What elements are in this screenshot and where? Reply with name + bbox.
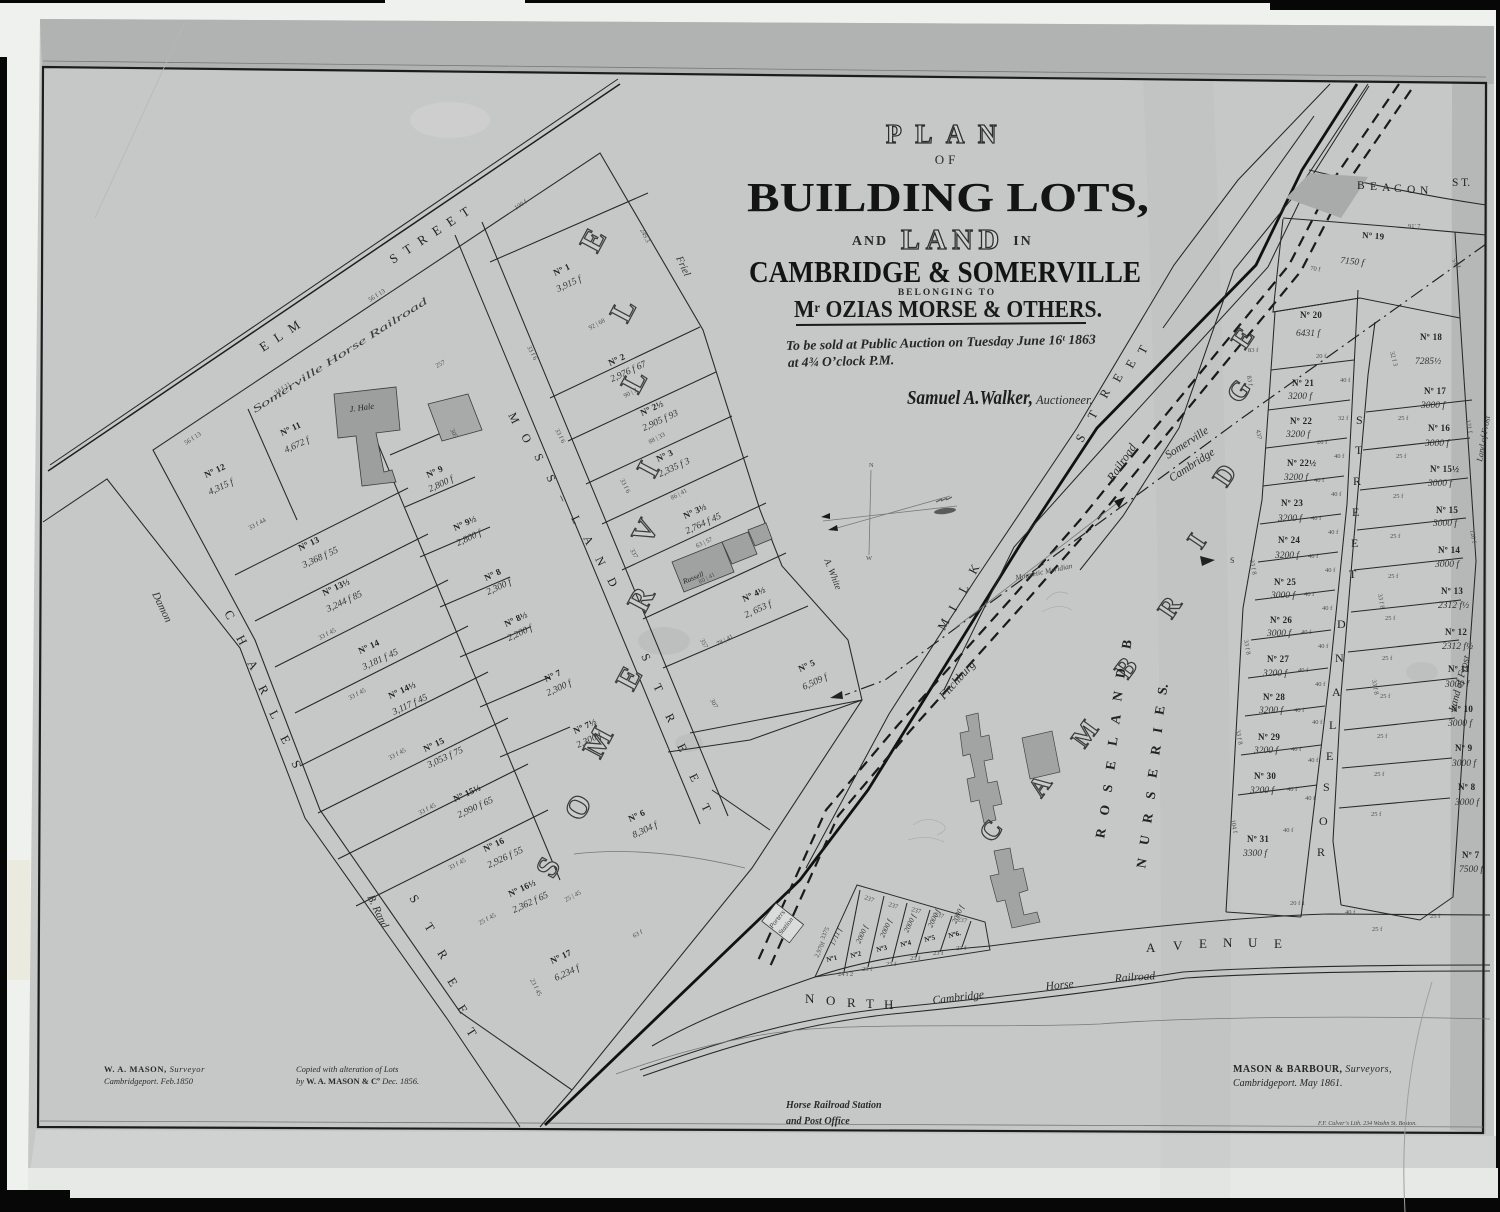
svg-text:Samuel A.Walker,: Samuel A.Walker, [907,387,1033,409]
svg-text:Nº 24: Nº 24 [1278,535,1300,545]
svg-text:25 f: 25 f [1374,771,1385,778]
svg-text:IN: IN [1013,234,1033,249]
svg-text:Mr OZIAS MORSE & OTHERS.: Mr OZIAS MORSE & OTHERS. [794,297,1102,323]
svg-text:3000 f: 3000 f [1420,400,1446,411]
svg-text:20 f: 20 f [1316,353,1327,360]
svg-text:Nº 13: Nº 13 [1441,586,1463,596]
svg-text:Nº 15½: Nº 15½ [1430,464,1459,474]
svg-text:CAMBRIDGE & SOMERVILLE: CAMBRIDGE & SOMERVILLE [749,254,1141,289]
svg-text:S: S [1230,556,1234,565]
svg-text:20 f: 20 f [1317,439,1328,446]
svg-text:7285½: 7285½ [1415,356,1441,367]
svg-text:Cambridgeport. Feb.1850: Cambridgeport. Feb.1850 [104,1076,194,1086]
svg-text:3000 f: 3000 f [1424,438,1450,449]
svg-text:A: A [1332,685,1341,699]
svg-text:Nº 23: Nº 23 [1281,498,1303,508]
svg-text:S: S [1323,780,1330,794]
svg-text:3200 f: 3200 f [1262,668,1288,679]
svg-text:O: O [1407,184,1415,196]
svg-text:Auctioneer.: Auctioneer. [1035,393,1093,407]
svg-text:BUILDING LOTS,: BUILDING LOTS, [747,174,1149,220]
svg-text:40 f: 40 f [1315,681,1326,688]
svg-text:25 f: 25 f [1377,733,1388,740]
svg-text:Nº 31: Nº 31 [1247,834,1269,844]
svg-text:Nº 22½: Nº 22½ [1287,458,1316,468]
svg-text:at 4¾ Oʼclock P.M.: at 4¾ Oʼclock P.M. [788,352,895,370]
svg-text:Horse Railroad Station: Horse Railroad Station [785,1100,882,1111]
svg-text:Nº 8: Nº 8 [1458,782,1476,792]
svg-text:Nº 9: Nº 9 [1455,743,1473,753]
svg-text:Cambridgeport. May 1861.: Cambridgeport. May 1861. [1233,1078,1342,1089]
svg-text:N: N [1335,651,1344,665]
svg-text:25 f: 25 f [1382,655,1393,662]
svg-text:Nº 20: Nº 20 [1300,310,1322,320]
svg-text:40 f: 40 f [1334,453,1345,460]
svg-text:E: E [1274,936,1282,951]
svg-text:3300 f: 3300 f [1242,848,1268,859]
svg-text:Nº 18: Nº 18 [1420,332,1442,342]
svg-text:40 f: 40 f [1311,515,1322,522]
svg-text:Nº 12: Nº 12 [1445,627,1467,637]
svg-text:Nº 14: Nº 14 [1438,545,1460,555]
svg-text:25 f: 25 f [1385,615,1396,622]
svg-text:C: C [1394,183,1402,195]
svg-text:40 f: 40 f [1304,591,1315,598]
svg-text:Nº 21: Nº 21 [1292,378,1314,388]
svg-text:20 f 1: 20 f 1 [1290,900,1305,907]
svg-text:40 f: 40 f [1331,491,1342,498]
svg-text:23 f: 23 f [910,955,921,962]
svg-text:O: O [1319,814,1328,828]
svg-text:MASON & BARBOUR, Surveyors,: MASON & BARBOUR, Surveyors, [1233,1064,1392,1075]
svg-text:D: D [1337,617,1346,631]
svg-text:25 f: 25 f [1430,913,1441,920]
svg-text:3200 f: 3200 f [1277,513,1303,524]
svg-text:Nº 26: Nº 26 [1270,615,1292,625]
svg-text:3200 f: 3200 f [1283,472,1309,483]
svg-text:H: H [884,997,893,1012]
svg-text:A: A [1146,940,1156,955]
svg-text:40 f: 40 f [1283,827,1294,834]
svg-text:3000 f: 3000 f [1451,758,1477,769]
svg-text:23 f: 23 f [886,961,897,968]
svg-text:Nº 29: Nº 29 [1258,732,1280,742]
svg-text:40 f: 40 f [1340,377,1351,384]
svg-text:40 f: 40 f [1305,795,1316,802]
svg-text:Nº 19: Nº 19 [1362,230,1385,242]
svg-text:3200 f: 3200 f [1274,550,1300,561]
svg-text:25 f: 25 f [1372,926,1383,933]
svg-text:PLAN: PLAN [886,119,1010,149]
svg-text:24 f 2: 24 f 2 [838,971,853,978]
svg-text:25 f: 25 f [1398,415,1409,422]
svg-text:Nº 25: Nº 25 [1274,577,1296,587]
svg-text:E: E [1370,181,1377,193]
svg-text:40 f: 40 f [1308,757,1319,764]
svg-text:25 f: 25 f [1396,453,1407,460]
svg-text:3000 f: 3000 f [1432,518,1458,529]
svg-text:3000 f: 3000 f [1270,590,1296,601]
svg-text:B: B [1357,180,1365,192]
svg-text:3000 f: 3000 f [1454,797,1480,808]
svg-text:E: E [1326,749,1333,763]
svg-text:Copied with alteration of Lots: Copied with alteration of Lots [296,1064,399,1074]
svg-text:Nº 16: Nº 16 [1428,423,1450,433]
svg-text:N: N [869,462,874,469]
svg-text:40 f: 40 f [1322,605,1333,612]
svg-text:A: A [1382,182,1391,194]
svg-text:F.F. Culverʼs Lith. 234 Washn: F.F. Culverʼs Lith. 234 Washn St. Boston… [1317,1120,1417,1127]
svg-text:Nº 22: Nº 22 [1290,416,1312,426]
svg-text:and Post Office: and Post Office [786,1116,850,1127]
svg-text:40 f: 40 f [1298,667,1309,674]
svg-text:W: W [866,555,873,562]
svg-text:3200 f: 3200 f [1285,429,1311,440]
svg-text:OF: OF [935,152,960,167]
svg-text:25 f: 25 f [1371,811,1382,818]
svg-text:40 f: 40 f [1308,553,1319,560]
svg-text:7500 f: 7500 f [1459,864,1484,875]
svg-text:25 f: 25 f [1388,573,1399,580]
svg-text:Nº 17: Nº 17 [1424,386,1446,396]
svg-text:3200 f: 3200 f [1249,785,1275,796]
svg-text:3000 f: 3000 f [1266,628,1292,639]
svg-text:23 f: 23 f [862,966,873,973]
svg-text:U: U [1248,935,1258,950]
svg-text:Nº 15: Nº 15 [1436,505,1458,515]
svg-text:R: R [1317,845,1325,859]
svg-text:6431 f: 6431 f [1296,328,1321,339]
svg-text:L: L [1329,718,1336,732]
svg-text:91' 7: 91' 7 [1408,223,1421,230]
svg-text:S T.: S T. [1452,177,1470,189]
svg-text:40 f: 40 f [1312,719,1323,726]
svg-text:AND: AND [852,234,888,249]
svg-text:3200 f: 3200 f [1253,745,1279,756]
svg-text:Nº 28: Nº 28 [1263,692,1285,702]
svg-text:40 f: 40 f [1325,567,1336,574]
svg-text:3000 f: 3000 f [1447,718,1473,729]
svg-text:83 f: 83 f [1248,347,1259,354]
svg-text:40 f: 40 f [1294,707,1305,714]
svg-text:Nº 7: Nº 7 [1462,850,1480,860]
svg-text:25 f: 25 f [1390,533,1401,540]
svg-text:40 f: 40 f [1318,643,1329,650]
svg-text:40 f: 40 f [1301,629,1312,636]
svg-text:40 f: 40 f [1291,746,1302,753]
svg-text:S: S [1356,413,1363,427]
svg-text:O: O [826,993,835,1008]
svg-text:3000 f: 3000 f [1434,559,1460,570]
svg-text:T: T [866,996,874,1011]
svg-text:by W. A. MASON & Cº Dec. 1856.: by W. A. MASON & Cº Dec. 1856. [296,1076,419,1086]
svg-text:W. A. MASON, Surveyor: W. A. MASON, Surveyor [104,1064,205,1074]
svg-text:N: N [805,991,815,1006]
svg-text:2312 f½: 2312 f½ [1438,600,1469,611]
svg-text:40 f: 40 f [1328,529,1339,536]
svg-text:E: E [1351,536,1358,550]
svg-text:R: R [847,995,856,1010]
svg-text:Nº 30: Nº 30 [1254,771,1276,781]
svg-text:2312 f½: 2312 f½ [1442,641,1473,652]
svg-text:Nº 27: Nº 27 [1267,654,1289,664]
svg-text:32 f: 32 f [1338,415,1349,422]
svg-text:25 f: 25 f [1393,493,1404,500]
svg-text:40 f: 40 f [1287,786,1298,793]
svg-text:25 f: 25 f [1380,693,1391,700]
svg-text:3200 f: 3200 f [1258,705,1284,716]
svg-text:3200 f: 3200 f [1287,391,1313,402]
svg-text:40 f: 40 f [1314,477,1325,484]
svg-text:N: N [1420,185,1429,197]
svg-text:3000 f: 3000 f [1427,478,1453,489]
svg-text:LAND: LAND [901,224,1005,256]
svg-text:40 f: 40 f [1345,909,1356,916]
